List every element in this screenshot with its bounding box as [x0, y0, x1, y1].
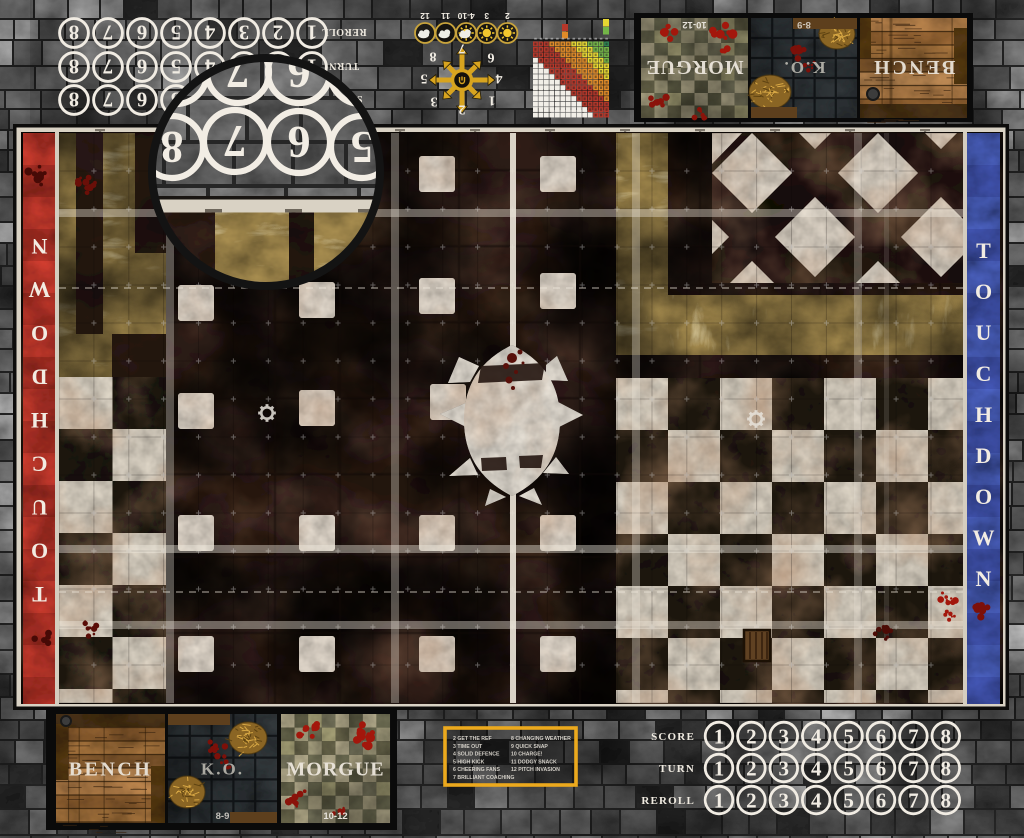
svg-text:7: 7: [908, 724, 919, 748]
svg-text:O: O: [975, 484, 992, 509]
svg-text:3: 3: [779, 756, 790, 780]
svg-text:8: 8: [69, 88, 80, 112]
svg-text:5: 5: [843, 756, 854, 780]
svg-text:5: 5: [421, 71, 428, 86]
svg-text:3: 3: [779, 788, 790, 812]
svg-text:D: D: [32, 365, 48, 390]
svg-text:7: 7: [908, 788, 919, 812]
svg-text:TURN: TURN: [659, 763, 695, 775]
svg-text:7: 7: [103, 21, 114, 45]
svg-text:4 SOLID DEFENCE: 4 SOLID DEFENCE: [453, 752, 500, 758]
svg-text:6: 6: [137, 55, 148, 79]
svg-text:2: 2: [459, 102, 466, 117]
svg-text:W: W: [973, 525, 995, 550]
svg-text:5: 5: [171, 55, 182, 79]
svg-text:8: 8: [941, 724, 952, 748]
svg-text:10-12: 10-12: [682, 19, 706, 30]
svg-text:4: 4: [811, 724, 822, 748]
svg-text:U: U: [31, 495, 47, 520]
svg-text:4-10: 4-10: [457, 11, 474, 21]
svg-text:6: 6: [137, 88, 148, 112]
svg-text:4: 4: [811, 756, 822, 780]
svg-text:T: T: [32, 582, 47, 607]
svg-text:3: 3: [239, 21, 250, 45]
svg-text:8 CHANGING WEATHER: 8 CHANGING WEATHER: [511, 736, 571, 742]
svg-text:U: U: [976, 320, 992, 345]
svg-text:12 PITCH INVASION: 12 PITCH INVASION: [511, 767, 560, 773]
svg-text:10 CHARGE!: 10 CHARGE!: [511, 752, 543, 758]
svg-text:T: T: [976, 238, 991, 263]
svg-text:C: C: [32, 452, 48, 477]
svg-text:8: 8: [430, 49, 437, 64]
svg-text:8: 8: [941, 756, 952, 780]
svg-text:O: O: [31, 321, 48, 346]
svg-text:4: 4: [496, 71, 503, 86]
svg-text:1: 1: [489, 93, 496, 108]
svg-text:12: 12: [420, 11, 430, 21]
svg-text:3 TIME OUT: 3 TIME OUT: [453, 744, 483, 750]
svg-text:3: 3: [779, 724, 790, 748]
svg-text:6: 6: [488, 50, 495, 65]
svg-text:2: 2: [273, 21, 284, 45]
svg-text:1: 1: [714, 756, 725, 780]
svg-text:K.O.: K.O.: [201, 760, 244, 779]
svg-text:4: 4: [204, 21, 215, 45]
svg-text:8-9: 8-9: [797, 19, 811, 30]
svg-text:7: 7: [103, 55, 114, 79]
svg-text:11 DODGY SNACK: 11 DODGY SNACK: [511, 759, 557, 765]
svg-text:7: 7: [459, 41, 466, 56]
svg-text:10-12: 10-12: [323, 811, 347, 822]
svg-text:H: H: [31, 408, 48, 433]
svg-text:BENCH: BENCH: [872, 56, 956, 78]
svg-text:H: H: [975, 402, 992, 427]
svg-text:W: W: [29, 278, 51, 303]
svg-text:2 GET THE REF: 2 GET THE REF: [453, 736, 492, 742]
svg-text:SCORE: SCORE: [651, 731, 695, 743]
svg-text:1: 1: [307, 21, 318, 45]
svg-text:11: 11: [441, 11, 450, 21]
svg-text:1: 1: [714, 788, 725, 812]
svg-text:5: 5: [843, 724, 854, 748]
svg-text:5: 5: [171, 21, 182, 45]
svg-text:7: 7: [103, 88, 114, 112]
svg-text:6: 6: [876, 756, 887, 780]
svg-text:8: 8: [69, 21, 80, 45]
svg-text:5: 5: [843, 788, 854, 812]
svg-text:1: 1: [714, 724, 725, 748]
svg-text:6: 6: [288, 117, 311, 168]
svg-text:7: 7: [908, 756, 919, 780]
svg-text:8-9: 8-9: [216, 811, 230, 822]
svg-text:BENCH: BENCH: [69, 759, 153, 781]
svg-text:6: 6: [876, 724, 887, 748]
svg-text:MORGUE: MORGUE: [645, 56, 743, 78]
svg-text:O: O: [31, 539, 48, 564]
svg-text:2: 2: [746, 788, 757, 812]
svg-text:6: 6: [876, 788, 887, 812]
svg-text:K.O.: K.O.: [783, 58, 826, 77]
svg-text:8: 8: [941, 788, 952, 812]
svg-text:3: 3: [431, 94, 438, 109]
svg-text:3: 3: [484, 11, 489, 21]
svg-text:7 BRILLIANT COACHING: 7 BRILLIANT COACHING: [453, 775, 514, 781]
svg-text:2: 2: [746, 756, 757, 780]
svg-text:4: 4: [811, 788, 822, 812]
svg-text:2: 2: [505, 11, 510, 21]
svg-text:7: 7: [224, 116, 247, 167]
svg-text:N: N: [976, 566, 992, 591]
svg-text:D: D: [976, 443, 992, 468]
svg-text:8: 8: [69, 55, 80, 79]
svg-text:5 HIGH KICK: 5 HIGH KICK: [453, 759, 485, 765]
svg-text:REROLL: REROLL: [321, 26, 366, 37]
svg-text:REROLL: REROLL: [641, 795, 695, 807]
svg-text:MORGUE: MORGUE: [286, 759, 384, 781]
svg-text:TURN: TURN: [329, 60, 360, 71]
svg-text:9 QUICK SNAP: 9 QUICK SNAP: [511, 744, 548, 750]
svg-text:N: N: [31, 234, 47, 259]
svg-text:6 CHEERING FANS: 6 CHEERING FANS: [453, 767, 501, 773]
svg-text:6: 6: [137, 21, 148, 45]
svg-text:C: C: [976, 361, 992, 386]
svg-text:O: O: [975, 279, 992, 304]
svg-text:2: 2: [746, 724, 757, 748]
